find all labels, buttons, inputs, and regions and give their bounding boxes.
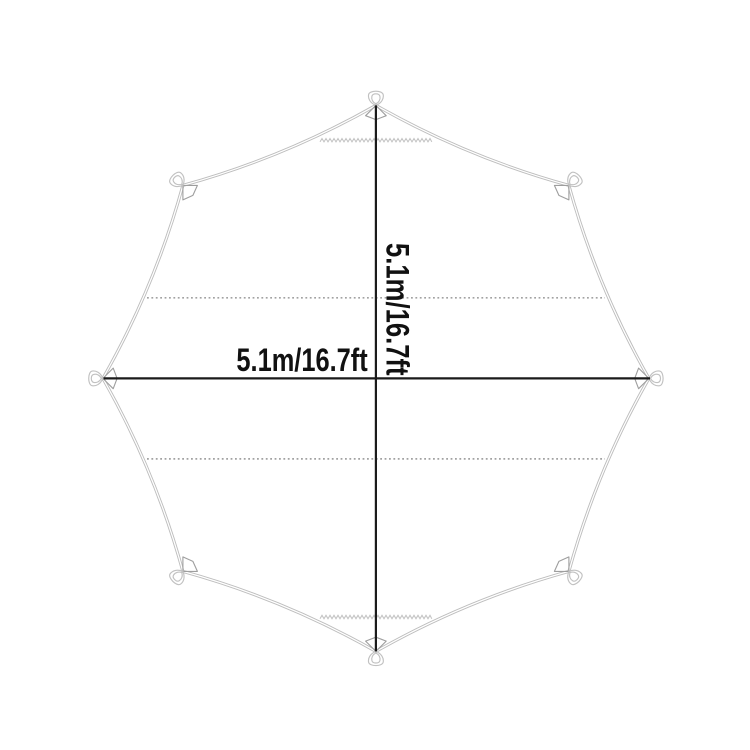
svg-text:5.1m/16.7ft: 5.1m/16.7ft xyxy=(379,243,415,376)
svg-text:5.1m/16.7ft: 5.1m/16.7ft xyxy=(236,342,368,378)
